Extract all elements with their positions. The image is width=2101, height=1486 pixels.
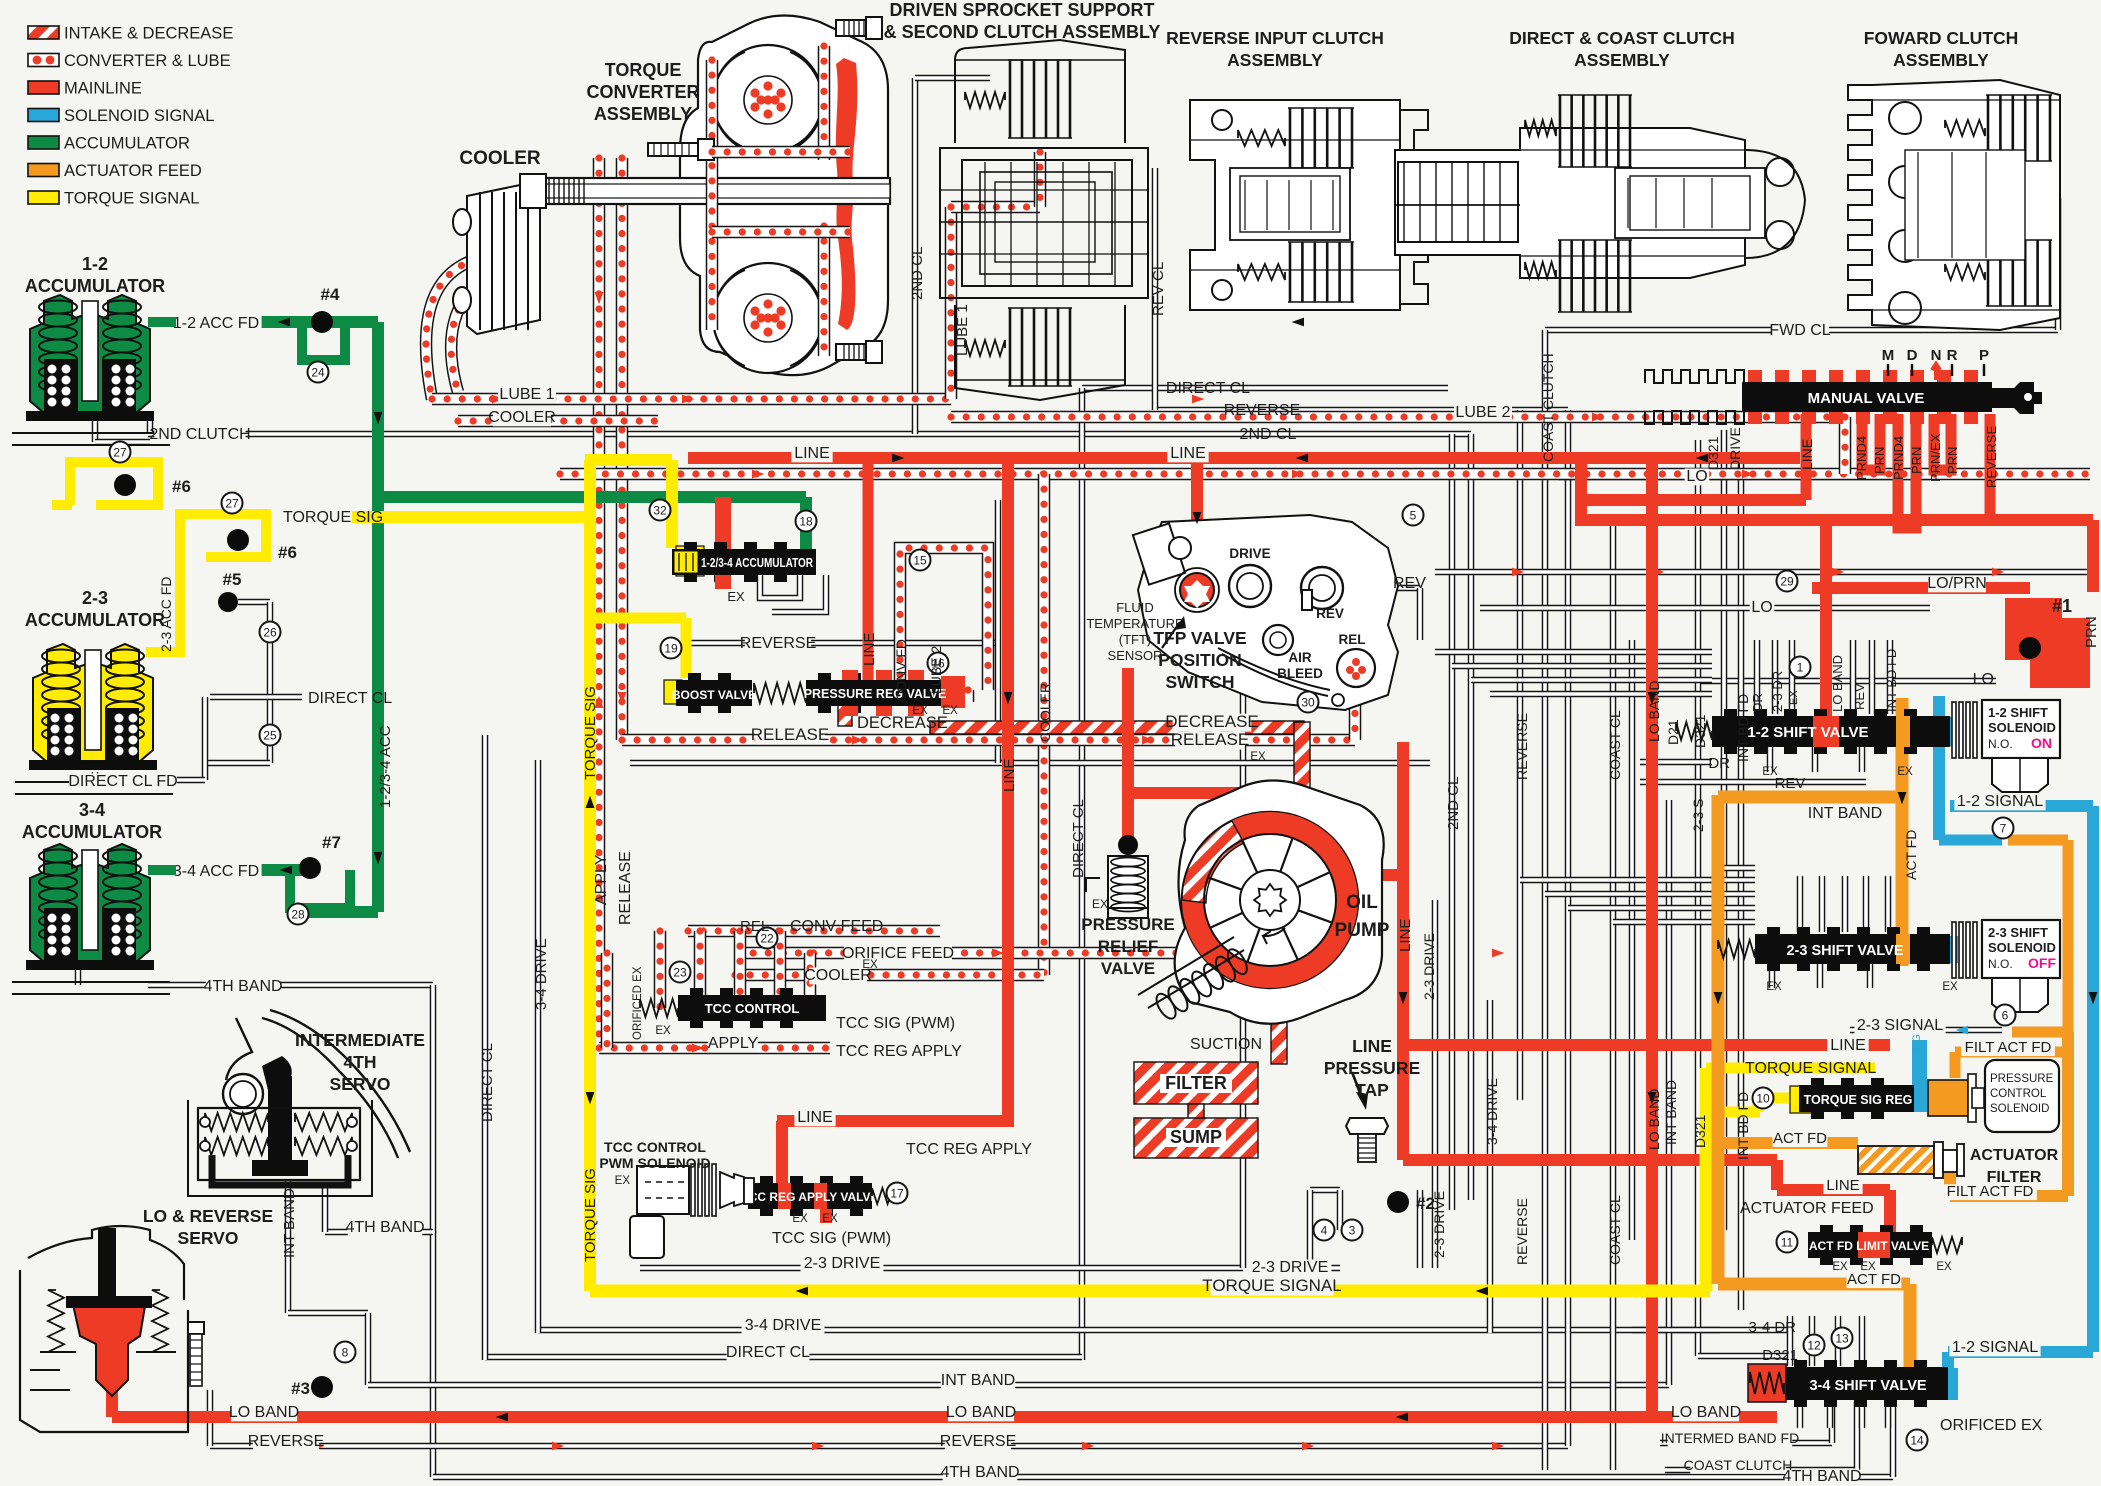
- svg-text:EX: EX: [1250, 751, 1266, 763]
- svg-text:LUBE 2: LUBE 2: [928, 646, 944, 694]
- svg-text:INT BD FD: INT BD FD: [1735, 1092, 1751, 1160]
- svg-text:LUBE 2: LUBE 2: [1455, 404, 1510, 421]
- svg-text:DIRECT & COAST CLUTCH: DIRECT & COAST CLUTCH: [1509, 28, 1735, 48]
- svg-text:2-3: 2-3: [82, 588, 108, 608]
- svg-text:DIRECT CL: DIRECT CL: [726, 1344, 810, 1361]
- svg-text:TORQUE SIG: TORQUE SIG: [582, 686, 599, 780]
- svg-text:REVERSE: REVERSE: [248, 1433, 324, 1450]
- svg-text:PRN: PRN: [1945, 447, 1960, 474]
- svg-text:POSITION: POSITION: [1158, 650, 1242, 670]
- svg-text:COOLER: COOLER: [459, 148, 541, 169]
- svg-text:DRIVEN SPROCKET SUPPORT: DRIVEN SPROCKET SUPPORT: [889, 0, 1154, 20]
- svg-text:D21: D21: [1665, 719, 1681, 745]
- svg-text:ACT FD: ACT FD: [1847, 1271, 1901, 1288]
- svg-text:LO BAND: LO BAND: [1830, 655, 1845, 712]
- svg-text:MANUAL VALVE: MANUAL VALVE: [1808, 390, 1925, 407]
- svg-text:COAST CLUTCH: COAST CLUTCH: [1684, 1457, 1793, 1473]
- svg-text:1-2/3-4 ACC: 1-2/3-4 ACC: [377, 725, 394, 808]
- svg-text:INTERMEDIATE: INTERMEDIATE: [295, 1030, 425, 1050]
- svg-text:M: M: [1882, 347, 1895, 364]
- svg-text:PRND4: PRND4: [1891, 436, 1906, 480]
- svg-text:CONV FD: CONV FD: [893, 639, 909, 702]
- svg-text:1-2 SIGNAL: 1-2 SIGNAL: [1957, 793, 2043, 810]
- svg-text:17: 17: [890, 1187, 904, 1201]
- svg-text:ASSEMBLY: ASSEMBLY: [594, 104, 692, 124]
- svg-text:LO: LO: [1751, 599, 1772, 616]
- svg-text:EX: EX: [942, 705, 958, 717]
- svg-text:2-3 DRIVE: 2-3 DRIVE: [1421, 933, 1437, 1000]
- svg-text:2-3 SIGNAL: 2-3 SIGNAL: [1857, 1017, 1943, 1034]
- svg-text:PRESSURE: PRESSURE: [1990, 1073, 2054, 1085]
- svg-text:LINE: LINE: [794, 445, 830, 462]
- svg-text:& SECOND CLUTCH ASSEMBLY: & SECOND CLUTCH ASSEMBLY: [884, 22, 1161, 42]
- svg-text:EX: EX: [1766, 981, 1782, 993]
- svg-text:SOLENOID: SOLENOID: [1990, 1103, 2049, 1115]
- svg-text:VBS SIG: VBS SIG: [1911, 1034, 1923, 1078]
- svg-text:SOLENOID SIGNAL: SOLENOID SIGNAL: [64, 107, 214, 125]
- svg-text:APPLY: APPLY: [593, 854, 610, 905]
- svg-text:EX: EX: [1762, 766, 1778, 778]
- svg-text:ASSEMBLY: ASSEMBLY: [1227, 50, 1323, 70]
- svg-text:DR: DR: [1750, 693, 1765, 712]
- svg-text:FWD CL: FWD CL: [1769, 322, 1830, 339]
- svg-text:EX: EX: [1942, 981, 1958, 993]
- svg-text:LINE: LINE: [1830, 1037, 1866, 1054]
- svg-text:PRN/EX: PRN/EX: [1928, 433, 1943, 482]
- svg-text:REVERSE: REVERSE: [1514, 1198, 1530, 1265]
- svg-text:LO BAND: LO BAND: [1646, 681, 1662, 742]
- svg-text:BOOST VALVE: BOOST VALVE: [672, 688, 756, 702]
- svg-text:DIRECT CL: DIRECT CL: [308, 690, 392, 707]
- svg-text:2-3 ACC FD: 2-3 ACC FD: [158, 577, 174, 652]
- svg-text:INTAKE & DECREASE: INTAKE & DECREASE: [64, 25, 233, 43]
- svg-text:COAST CL: COAST CL: [1607, 710, 1623, 780]
- svg-text:D321: D321: [1692, 714, 1708, 748]
- svg-text:1: 1: [1797, 661, 1804, 675]
- svg-text:CONVERTER & LUBE: CONVERTER & LUBE: [64, 52, 231, 70]
- svg-text:TORQUE: TORQUE: [605, 60, 682, 80]
- svg-text:30: 30: [1301, 696, 1315, 710]
- svg-text:INT BAND: INT BAND: [941, 1372, 1015, 1389]
- svg-text:P: P: [1979, 347, 1989, 364]
- svg-text:#6: #6: [172, 477, 191, 496]
- svg-text:4TH BAND: 4TH BAND: [203, 978, 282, 995]
- svg-text:1-2 SHIFT: 1-2 SHIFT: [1988, 705, 2048, 720]
- svg-text:RELEASE: RELEASE: [617, 851, 634, 925]
- svg-text:#5: #5: [223, 570, 242, 589]
- svg-text:SERVO: SERVO: [330, 1074, 391, 1094]
- svg-text:EX: EX: [615, 1175, 631, 1187]
- svg-text:BLEED: BLEED: [1277, 666, 1323, 681]
- svg-text:VALVE: VALVE: [1101, 959, 1155, 978]
- svg-text:28: 28: [291, 908, 305, 922]
- svg-text:2-3 SHIFT: 2-3 SHIFT: [1988, 925, 2048, 940]
- svg-text:LO BAND: LO BAND: [946, 1404, 1016, 1421]
- svg-text:EX: EX: [1788, 690, 1800, 705]
- svg-text:ASSEMBLY: ASSEMBLY: [1893, 50, 1989, 70]
- svg-text:FILT ACT FD: FILT ACT FD: [1947, 1183, 2034, 1200]
- svg-text:2ND CL: 2ND CL: [1445, 777, 1462, 830]
- svg-text:CONVERTER: CONVERTER: [586, 82, 699, 102]
- svg-text:10: 10: [1756, 1092, 1770, 1106]
- svg-text:3-4 DR: 3-4 DR: [1748, 1319, 1796, 1336]
- svg-text:(TFT): (TFT): [1119, 632, 1151, 647]
- svg-text:4TH BAND: 4TH BAND: [1782, 1468, 1861, 1485]
- svg-text:ACCUMULATOR: ACCUMULATOR: [22, 822, 162, 842]
- svg-text:TORQUE SIGNAL: TORQUE SIGNAL: [1745, 1060, 1876, 1077]
- svg-text:LUBE 1: LUBE 1: [954, 304, 971, 356]
- svg-text:2-3 DRIVE: 2-3 DRIVE: [804, 1255, 880, 1272]
- svg-text:REVERSE: REVERSE: [940, 1433, 1016, 1450]
- svg-text:LO BAND: LO BAND: [1646, 1089, 1662, 1150]
- svg-text:LO & REVERSE: LO & REVERSE: [143, 1206, 273, 1226]
- svg-text:1-2/3-4 ACCUMULATOR: 1-2/3-4 ACCUMULATOR: [701, 556, 813, 570]
- svg-text:TCC SIG (PWM): TCC SIG (PWM): [836, 1015, 955, 1032]
- svg-text:DECREASE: DECREASE: [857, 714, 948, 732]
- svg-text:MAINLINE: MAINLINE: [64, 80, 142, 98]
- svg-text:REL: REL: [740, 918, 769, 935]
- svg-text:REV CL: REV CL: [1150, 262, 1167, 316]
- svg-text:INT BAND: INT BAND: [281, 1188, 298, 1258]
- svg-text:EX: EX: [1832, 1261, 1848, 1273]
- svg-text:D: D: [1907, 347, 1918, 364]
- svg-text:LINE: LINE: [1170, 445, 1206, 462]
- svg-text:TCC CONTROL: TCC CONTROL: [604, 1139, 706, 1155]
- svg-text:TORQUE SIG REG: TORQUE SIG REG: [1804, 1093, 1913, 1107]
- svg-text:REV: REV: [1852, 683, 1867, 710]
- svg-text:DRIVE: DRIVE: [1229, 546, 1270, 561]
- svg-text:15: 15: [913, 554, 927, 568]
- svg-text:27: 27: [225, 497, 239, 511]
- svg-text:DR: DR: [1708, 755, 1730, 772]
- svg-text:REVERSE: REVERSE: [1224, 402, 1300, 419]
- svg-text:DIRECT CL: DIRECT CL: [1070, 799, 1087, 878]
- svg-text:6: 6: [2002, 1009, 2009, 1023]
- svg-text:#7: #7: [322, 833, 341, 852]
- svg-text:ACTUATOR FEED: ACTUATOR FEED: [64, 162, 202, 180]
- svg-text:TCC CONTROL: TCC CONTROL: [705, 1001, 800, 1016]
- svg-text:EX: EX: [792, 1213, 808, 1225]
- svg-text:SWITCH: SWITCH: [1165, 672, 1234, 692]
- svg-text:INTERMED BAND FD: INTERMED BAND FD: [1661, 1430, 1799, 1446]
- svg-text:APPLY: APPLY: [708, 1035, 759, 1052]
- svg-text:SUMP: SUMP: [1170, 1127, 1222, 1147]
- svg-text:PRN: PRN: [1909, 447, 1924, 474]
- svg-text:RELEASE: RELEASE: [751, 725, 829, 744]
- svg-text:23: 23: [673, 966, 687, 980]
- svg-text:2ND CLUTCH: 2ND CLUTCH: [149, 426, 250, 443]
- svg-text:ACT FD LIMIT VALVE: ACT FD LIMIT VALVE: [1809, 1239, 1929, 1253]
- svg-text:OFF: OFF: [2028, 955, 2056, 971]
- svg-text:#6: #6: [278, 543, 297, 562]
- svg-text:DIRECT CL FD: DIRECT CL FD: [68, 773, 177, 790]
- svg-text:3-4 DRIVE: 3-4 DRIVE: [533, 938, 550, 1010]
- svg-text:ORIFICED EX: ORIFICED EX: [632, 966, 644, 1040]
- svg-text:2-3 SHIFT VALVE: 2-3 SHIFT VALVE: [1786, 943, 1903, 959]
- svg-text:4TH BAND: 4TH BAND: [345, 1219, 424, 1236]
- svg-text:LINE: LINE: [797, 1109, 833, 1126]
- svg-text:REV: REV: [1775, 775, 1806, 792]
- svg-text:11: 11: [1781, 1236, 1794, 1250]
- svg-text:32: 32: [653, 504, 667, 518]
- svg-text:ACTUATOR FEED: ACTUATOR FEED: [1740, 1200, 1874, 1217]
- svg-text:PRESSURE: PRESSURE: [1081, 915, 1175, 934]
- svg-text:PRESSURE: PRESSURE: [1324, 1058, 1420, 1078]
- svg-text:ASSEMBLY: ASSEMBLY: [1574, 50, 1670, 70]
- svg-text:SOLENOID: SOLENOID: [1988, 720, 2056, 735]
- svg-text:EX: EX: [1092, 897, 1108, 911]
- svg-text:PRN: PRN: [1872, 447, 1887, 474]
- svg-text:ACTUATOR: ACTUATOR: [1970, 1147, 2059, 1164]
- svg-text:R: R: [1947, 347, 1958, 364]
- svg-text:29: 29: [1780, 575, 1794, 589]
- svg-text:ACT FD: ACT FD: [1903, 830, 1919, 880]
- svg-text:COAST CL: COAST CL: [1607, 1195, 1623, 1265]
- svg-text:EX: EX: [727, 589, 745, 604]
- svg-text:TCC REG APPLY: TCC REG APPLY: [906, 1141, 1032, 1158]
- svg-text:LO: LO: [1973, 671, 1994, 688]
- svg-text:SERVO: SERVO: [178, 1228, 239, 1248]
- svg-text:19: 19: [664, 642, 678, 656]
- svg-text:TORQUE SIGNAL: TORQUE SIGNAL: [1202, 1276, 1342, 1295]
- svg-text:FOWARD CLUTCH: FOWARD CLUTCH: [1864, 28, 2019, 48]
- svg-text:AIR: AIR: [1288, 650, 1312, 665]
- svg-text:25: 25: [263, 729, 277, 743]
- svg-text:D321: D321: [1762, 1347, 1798, 1364]
- svg-text:EX: EX: [1897, 766, 1913, 778]
- svg-text:RELIEF: RELIEF: [1098, 937, 1158, 956]
- svg-text:TEMPERATURE: TEMPERATURE: [1086, 616, 1184, 631]
- svg-text:DIRECT CL: DIRECT CL: [1166, 380, 1250, 397]
- svg-text:ACCUMULATOR: ACCUMULATOR: [25, 276, 165, 296]
- svg-text:LO BAND: LO BAND: [1671, 1404, 1741, 1421]
- svg-text:4: 4: [1321, 1224, 1328, 1238]
- svg-text:REV: REV: [1316, 606, 1344, 621]
- svg-text:REVERSE: REVERSE: [1984, 426, 1999, 488]
- svg-text:3-4 DRIVE: 3-4 DRIVE: [1484, 1078, 1500, 1145]
- svg-text:TFP VALVE: TFP VALVE: [1153, 628, 1246, 648]
- svg-text:SOLENOID: SOLENOID: [1988, 940, 2056, 955]
- svg-text:SUCTION: SUCTION: [1190, 1036, 1262, 1053]
- svg-text:FILT ACT FD: FILT ACT FD: [1965, 1039, 2052, 1056]
- svg-text:TORQUE SIG: TORQUE SIG: [283, 509, 383, 526]
- svg-text:PWM SOLENOID: PWM SOLENOID: [599, 1155, 710, 1171]
- svg-text:REVERSE: REVERSE: [740, 635, 816, 652]
- svg-text:2-3 S: 2-3 S: [1690, 799, 1706, 832]
- svg-text:REVERSE: REVERSE: [1514, 713, 1530, 780]
- svg-text:13: 13: [1835, 1332, 1849, 1346]
- svg-text:3-4 ACC FD: 3-4 ACC FD: [173, 863, 259, 880]
- svg-text:EX: EX: [655, 1025, 671, 1037]
- svg-text:2ND CL: 2ND CL: [1240, 426, 1297, 443]
- svg-text:FLUID: FLUID: [1116, 600, 1154, 615]
- svg-text:2-3 DRIVE: 2-3 DRIVE: [1252, 1259, 1328, 1276]
- svg-text:PRESSURE REG VALVE: PRESSURE REG VALVE: [804, 687, 947, 701]
- svg-text:LINE: LINE: [861, 633, 878, 666]
- svg-text:2-3 DR: 2-3 DR: [1770, 671, 1785, 712]
- svg-text:ACCUMULATOR: ACCUMULATOR: [64, 135, 190, 153]
- svg-text:ACT FD: ACT FD: [1773, 1130, 1827, 1147]
- svg-text:1-2 SIGNAL: 1-2 SIGNAL: [1952, 1339, 2038, 1356]
- svg-text:PRN: PRN: [2083, 616, 2100, 648]
- svg-text:TORQUE SIGNAL: TORQUE SIGNAL: [64, 190, 199, 208]
- svg-text:COOLER: COOLER: [488, 409, 556, 426]
- svg-text:5: 5: [1410, 509, 1417, 523]
- svg-text:D321: D321: [1705, 436, 1721, 470]
- svg-text:LINE: LINE: [1826, 1177, 1859, 1194]
- svg-text:3-4 DRIVE: 3-4 DRIVE: [745, 1317, 821, 1334]
- svg-text:INT BD FD: INT BD FD: [1735, 694, 1751, 762]
- svg-text:2-3 DRIVE: 2-3 DRIVE: [1431, 1191, 1447, 1258]
- svg-text:4TH: 4TH: [343, 1052, 376, 1072]
- svg-text:TCC SIG (PWM): TCC SIG (PWM): [772, 1230, 891, 1247]
- svg-text:REV: REV: [1393, 575, 1426, 592]
- svg-text:8: 8: [342, 1346, 349, 1360]
- svg-text:REL: REL: [1339, 632, 1366, 647]
- svg-text:N.O.: N.O.: [1988, 737, 2013, 751]
- svg-text:1-2 ACC FD: 1-2 ACC FD: [173, 315, 259, 332]
- svg-text:ON: ON: [2031, 735, 2052, 751]
- svg-text:INT BAND: INT BAND: [1808, 805, 1882, 822]
- svg-text:N.O.: N.O.: [1988, 957, 2013, 971]
- svg-text:SENSOR: SENSOR: [1108, 648, 1163, 663]
- svg-text:CONTROL: CONTROL: [1990, 1088, 2047, 1100]
- svg-text:EX: EX: [1936, 1261, 1952, 1273]
- svg-text:24: 24: [311, 366, 325, 380]
- svg-text:3: 3: [1349, 1224, 1356, 1238]
- svg-text:COAST CLUTCH: COAST CLUTCH: [1540, 353, 1556, 462]
- svg-text:REVERSE INPUT CLUTCH: REVERSE INPUT CLUTCH: [1166, 28, 1384, 48]
- svg-text:TCC REG APPLY VALVE: TCC REG APPLY VALVE: [741, 1190, 878, 1204]
- svg-text:COOLER: COOLER: [1037, 683, 1053, 742]
- svg-text:2ND CL: 2ND CL: [909, 247, 926, 300]
- svg-text:26: 26: [263, 626, 277, 640]
- svg-text:#1: #1: [2052, 596, 2072, 616]
- svg-text:TORQUE SIG: TORQUE SIG: [582, 1168, 599, 1262]
- svg-text:EX: EX: [862, 959, 878, 971]
- svg-text:D321: D321: [1692, 1114, 1708, 1148]
- svg-text:LINE: LINE: [1352, 1036, 1392, 1056]
- svg-text:PUMP: PUMP: [1335, 920, 1390, 941]
- svg-text:7: 7: [2000, 822, 2007, 836]
- svg-text:EX: EX: [912, 705, 928, 717]
- svg-text:OIL: OIL: [1346, 892, 1378, 913]
- svg-text:LINE: LINE: [1799, 439, 1815, 470]
- svg-text:4TH BAND: 4TH BAND: [940, 1464, 1019, 1481]
- svg-text:14: 14: [1910, 1434, 1924, 1448]
- svg-text:1-2 SHIFT VALVE: 1-2 SHIFT VALVE: [1747, 724, 1868, 741]
- svg-text:ORIFICE FEED: ORIFICE FEED: [842, 945, 954, 962]
- svg-text:EX: EX: [822, 1213, 838, 1225]
- svg-text:18: 18: [799, 515, 813, 529]
- svg-text:3-4 SHIFT VALVE: 3-4 SHIFT VALVE: [1809, 1378, 1926, 1394]
- svg-text:INT BAND: INT BAND: [1663, 1080, 1679, 1145]
- svg-text:FILTER: FILTER: [1165, 1073, 1227, 1093]
- svg-text:3-4: 3-4: [79, 800, 105, 820]
- svg-text:TAP: TAP: [1355, 1080, 1389, 1100]
- svg-text:27: 27: [113, 446, 127, 460]
- svg-text:INT BD FD: INT BD FD: [1884, 649, 1899, 712]
- svg-text:RELEASE: RELEASE: [1171, 730, 1249, 749]
- svg-text:LO BAND: LO BAND: [229, 1404, 299, 1421]
- svg-text:LINE: LINE: [1397, 919, 1414, 952]
- svg-text:DRIVE: DRIVE: [1727, 427, 1743, 470]
- svg-text:CONV FEED: CONV FEED: [790, 918, 883, 935]
- svg-text:EX: EX: [1860, 1261, 1876, 1273]
- svg-text:1-2: 1-2: [82, 254, 108, 274]
- svg-text:ACCUMULATOR: ACCUMULATOR: [25, 610, 165, 630]
- svg-text:TCC REG APPLY: TCC REG APPLY: [836, 1043, 962, 1060]
- svg-text:PRND4: PRND4: [1854, 436, 1869, 480]
- svg-text:ORIFICED EX: ORIFICED EX: [1940, 1417, 2043, 1434]
- svg-text:LINE: LINE: [1001, 759, 1018, 792]
- svg-text:#3: #3: [291, 1379, 310, 1398]
- svg-text:DIRECT CL: DIRECT CL: [479, 1043, 496, 1122]
- svg-text:12: 12: [1807, 1339, 1821, 1353]
- svg-text:#4: #4: [321, 285, 340, 304]
- svg-text:LUBE 1: LUBE 1: [499, 386, 554, 403]
- svg-text:LO/PRN: LO/PRN: [1927, 575, 1987, 592]
- svg-text:DECREASE: DECREASE: [1165, 712, 1259, 731]
